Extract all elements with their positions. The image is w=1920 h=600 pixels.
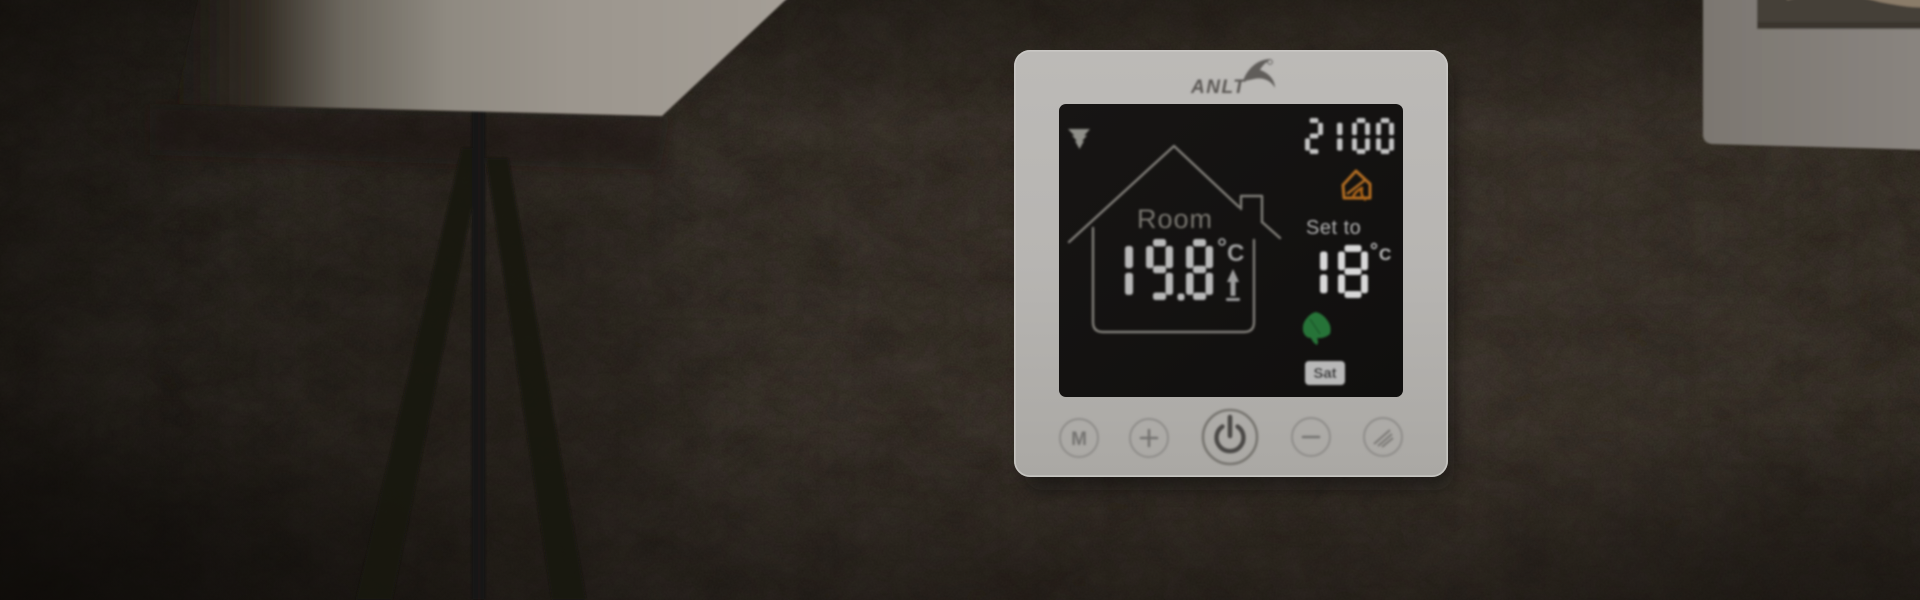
- svg-text:ANLT: ANLT: [1190, 77, 1246, 98]
- svg-text:C: C: [1379, 245, 1391, 264]
- svg-text:Sat: Sat: [1313, 365, 1336, 382]
- svg-text:M: M: [1071, 429, 1087, 450]
- svg-text:Room: Room: [1137, 204, 1213, 234]
- svg-text:Set to: Set to: [1306, 217, 1361, 239]
- svg-text:C: C: [1227, 240, 1244, 267]
